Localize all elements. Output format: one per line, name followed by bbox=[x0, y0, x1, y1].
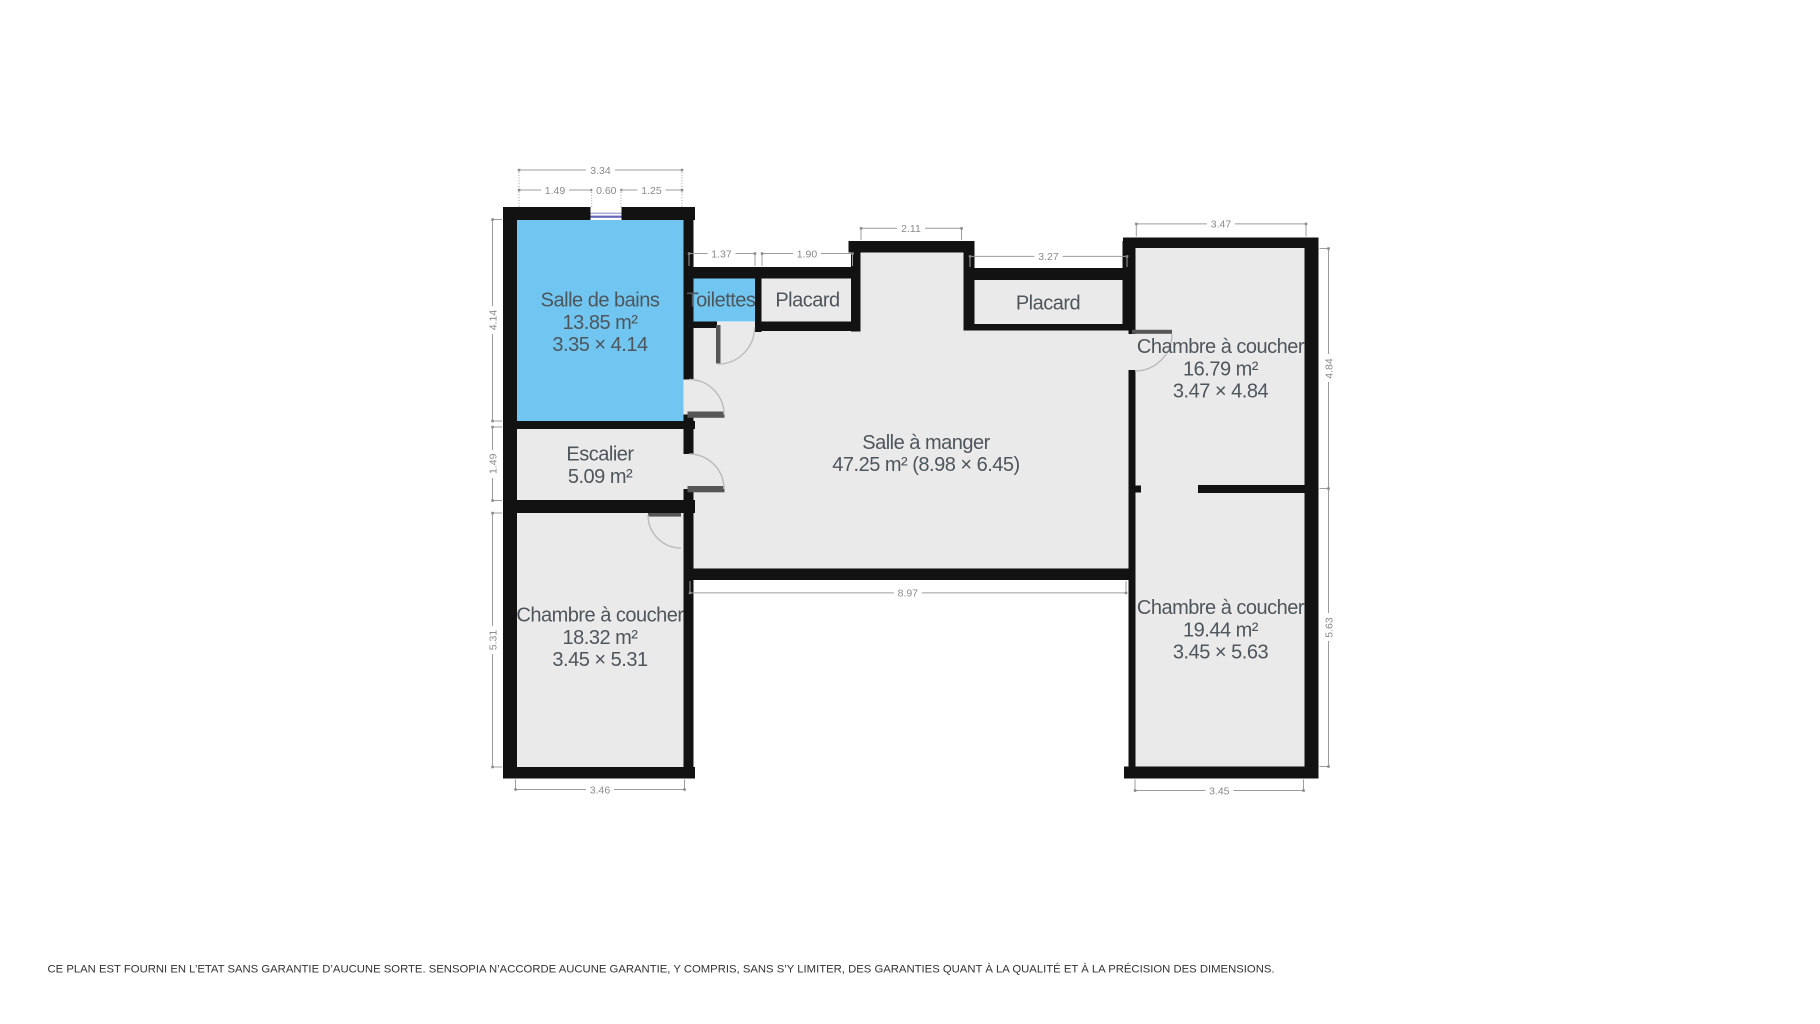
svg-text:1.49: 1.49 bbox=[545, 185, 566, 197]
svg-text:1.37: 1.37 bbox=[711, 248, 732, 260]
svg-text:Placard: Placard bbox=[1016, 293, 1080, 315]
svg-text:3.47: 3.47 bbox=[1211, 219, 1232, 231]
svg-text:5.09 m²: 5.09 m² bbox=[568, 466, 633, 488]
svg-text:Chambre à coucher: Chambre à coucher bbox=[516, 605, 684, 627]
svg-text:3.47 × 4.84: 3.47 × 4.84 bbox=[1173, 381, 1269, 403]
svg-text:3.45 × 5.31: 3.45 × 5.31 bbox=[552, 649, 648, 671]
svg-text:3.34: 3.34 bbox=[590, 165, 611, 177]
svg-text:1.25: 1.25 bbox=[641, 185, 662, 197]
svg-text:5.31: 5.31 bbox=[487, 630, 499, 651]
svg-text:3.45 × 5.63: 3.45 × 5.63 bbox=[1173, 642, 1269, 664]
svg-text:Escalier: Escalier bbox=[566, 444, 634, 466]
svg-text:16.79 m²: 16.79 m² bbox=[1183, 358, 1259, 380]
svg-text:3.35 × 4.14: 3.35 × 4.14 bbox=[552, 334, 648, 356]
svg-text:CE PLAN EST FOURNI EN L’ETAT S: CE PLAN EST FOURNI EN L’ETAT SANS GARANT… bbox=[48, 963, 1275, 976]
svg-text:3.46: 3.46 bbox=[590, 784, 611, 796]
svg-text:1.90: 1.90 bbox=[797, 248, 818, 260]
svg-text:47.25 m² (8.98 × 6.45): 47.25 m² (8.98 × 6.45) bbox=[832, 454, 1019, 476]
svg-text:8.97: 8.97 bbox=[898, 588, 919, 600]
svg-text:19.44 m²: 19.44 m² bbox=[1183, 619, 1259, 641]
svg-text:4.14: 4.14 bbox=[487, 310, 499, 331]
svg-text:4.84: 4.84 bbox=[1323, 358, 1335, 379]
svg-text:Salle à manger: Salle à manger bbox=[862, 432, 990, 454]
svg-text:3.27: 3.27 bbox=[1038, 251, 1059, 263]
svg-text:Salle de bains: Salle de bains bbox=[541, 290, 660, 312]
svg-text:13.85 m²: 13.85 m² bbox=[563, 312, 639, 334]
svg-text:2.11: 2.11 bbox=[901, 223, 921, 235]
svg-text:1.49: 1.49 bbox=[487, 453, 499, 474]
svg-text:Chambre à coucher: Chambre à coucher bbox=[1137, 336, 1305, 358]
svg-text:0.60: 0.60 bbox=[596, 185, 617, 197]
svg-text:18.32 m²: 18.32 m² bbox=[563, 627, 639, 649]
svg-text:Toilettes: Toilettes bbox=[687, 290, 756, 312]
svg-text:3.45: 3.45 bbox=[1209, 785, 1230, 797]
svg-text:Placard: Placard bbox=[775, 290, 839, 312]
svg-text:Chambre à coucher: Chambre à coucher bbox=[1137, 597, 1305, 619]
svg-text:5.63: 5.63 bbox=[1323, 617, 1335, 638]
